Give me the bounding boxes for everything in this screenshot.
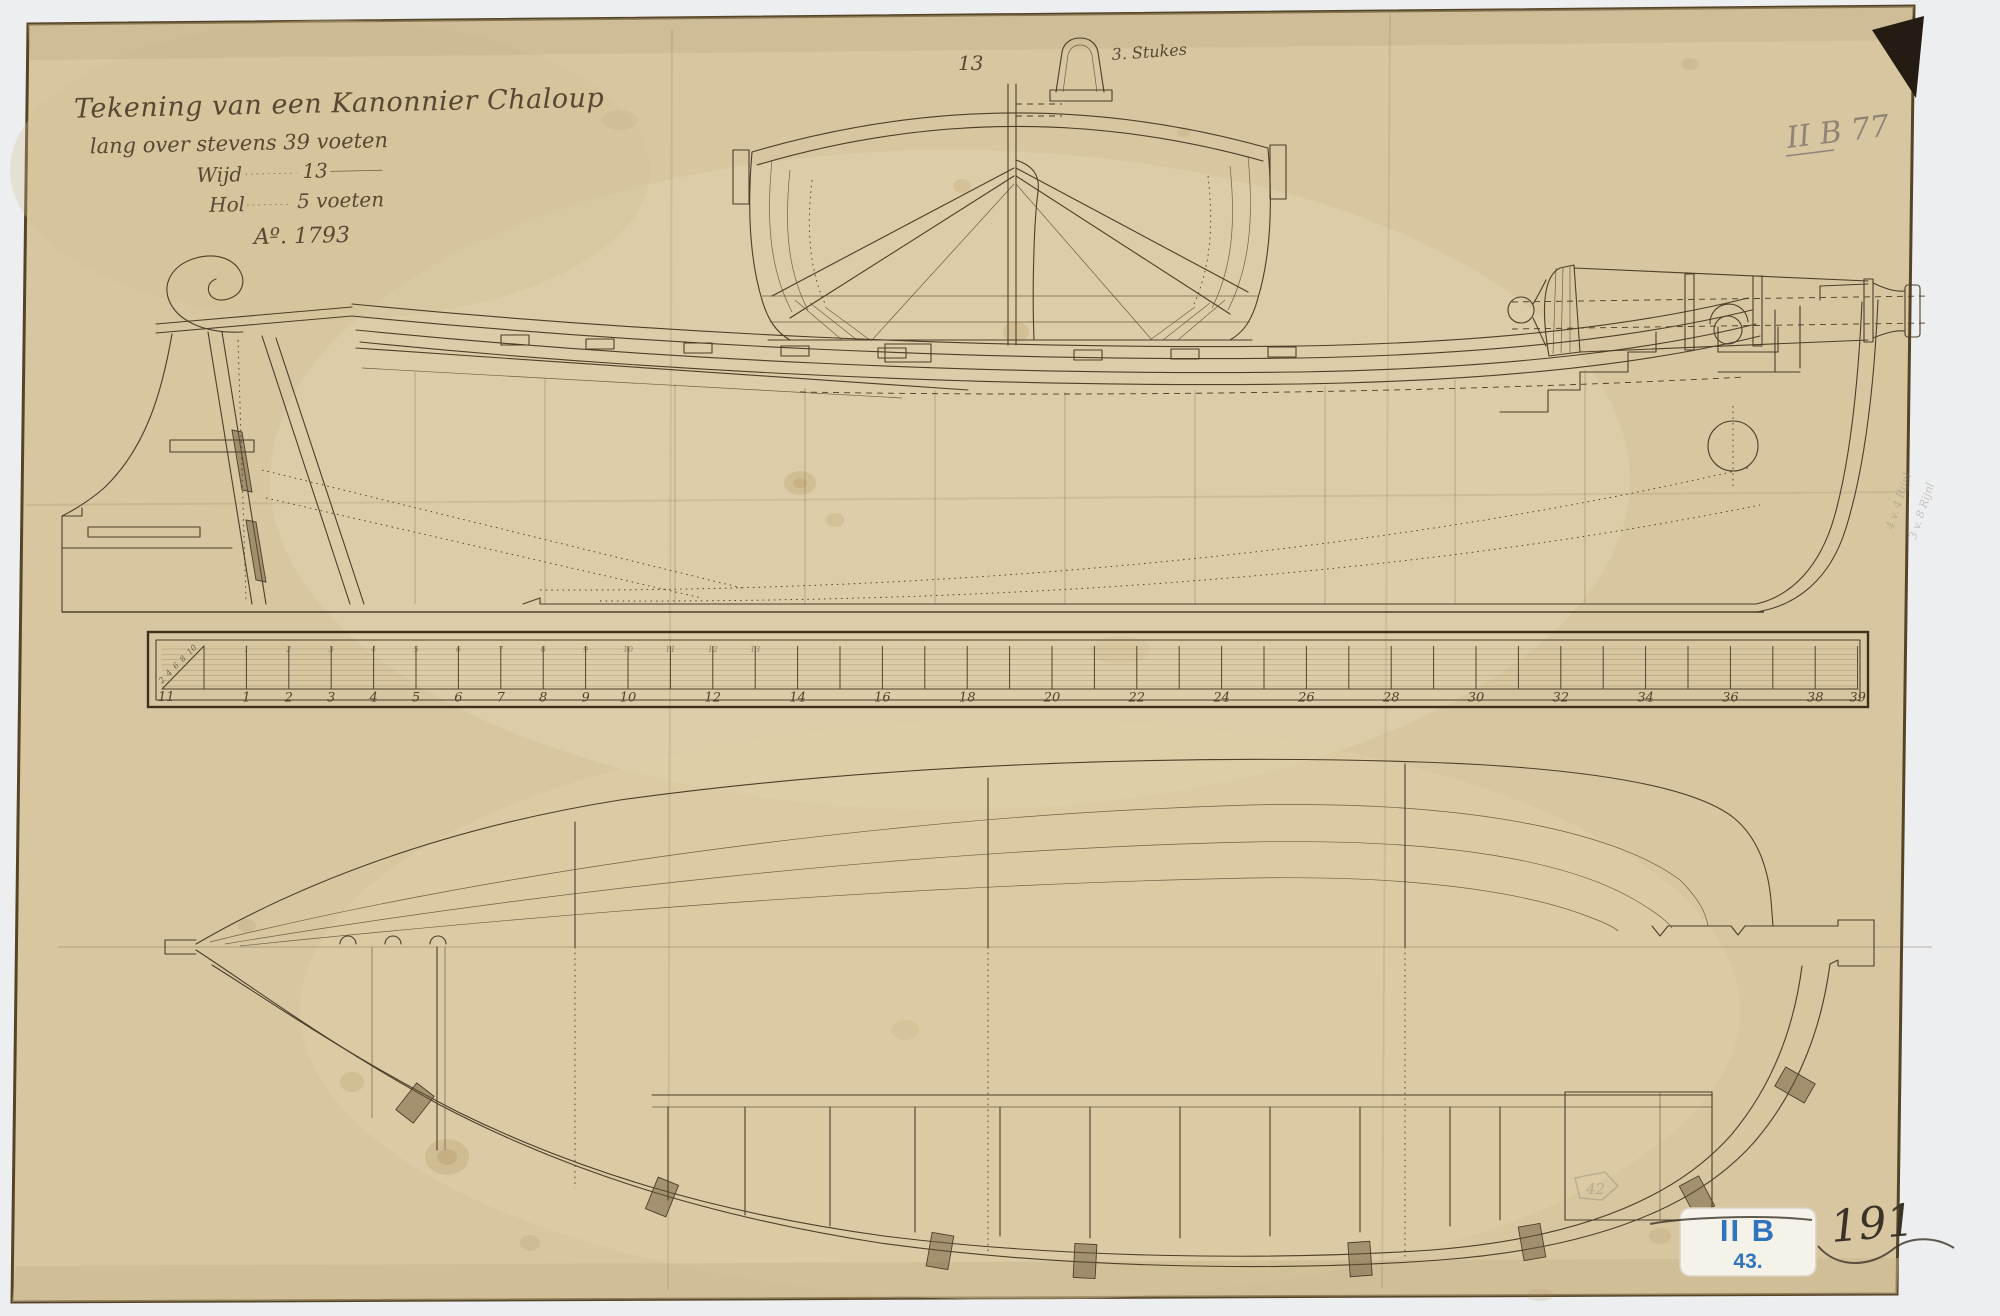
scale-number-bottom: 10 <box>620 691 637 706</box>
scale-number-top: 10 <box>623 645 633 654</box>
pencil-circle-number: 42 <box>1585 1180 1605 1198</box>
scale-number-bottom: 14 <box>789 691 806 706</box>
scale-number-top: 6 <box>456 645 461 654</box>
body-plan-beam-label: 13 <box>958 51 983 75</box>
scale-number-bottom: 20 <box>1043 691 1061 706</box>
beam-label: Wijd <box>196 162 242 187</box>
scale-number-top: 2 <box>285 645 291 654</box>
scale-number-bottom: 7 <box>497 691 506 706</box>
scale-number-bottom: 16 <box>874 691 891 706</box>
scale-number-bottom: 24 <box>1212 691 1230 706</box>
depth-value: 5 voeten <box>297 187 384 213</box>
scale-number-bottom: 38 <box>1807 691 1824 706</box>
scale-number-top: 4 <box>370 645 376 654</box>
scale-number-bottom: 18 <box>959 691 976 706</box>
scale-number-bottom: 9 <box>581 691 589 706</box>
ship-plan-canvas: Tekening van een Kanonnier Chaloup lang … <box>0 0 2000 1316</box>
beam-value: 13 <box>302 158 328 183</box>
scale-number-corner: 11 <box>158 690 175 705</box>
scale-number-bottom: 5 <box>412 691 420 706</box>
scale-number-bottom: 39 <box>1849 691 1866 706</box>
scale-number-top: 7 <box>498 645 504 654</box>
scale-number-bottom: 34 <box>1637 691 1654 706</box>
scale-number-bottom: 26 <box>1297 691 1315 706</box>
scanned-drawing-page: Tekening van een Kanonnier Chaloup lang … <box>0 0 2000 1316</box>
scale-number-top: 1 <box>244 645 249 654</box>
scale-number-top: 5 <box>413 645 418 654</box>
scale-number-bottom: 30 <box>1468 691 1485 706</box>
scale-number-bottom: 3 <box>327 691 335 706</box>
scale-number-top: 9 <box>583 645 588 654</box>
year-note: Aº. 1793 <box>252 223 351 250</box>
scale-number-bottom: 2 <box>284 691 293 706</box>
scale-number-bottom: 36 <box>1722 691 1739 706</box>
scale-number-bottom: 28 <box>1382 691 1400 706</box>
paper-light-patch <box>300 720 1740 1300</box>
scale-number-bottom: 8 <box>539 691 547 706</box>
scale-number-top: 8 <box>541 645 546 654</box>
depth-label: Hol <box>208 192 245 217</box>
scale-number-top: 11 <box>665 645 675 654</box>
scale-number-top: 3 <box>329 645 334 654</box>
inventory-number-text: 191 <box>1829 1195 1917 1253</box>
scale-number-bottom: 12 <box>705 691 722 706</box>
paper-dark-patch <box>10 20 650 320</box>
scale-number-bottom: 22 <box>1128 691 1146 706</box>
stern-note-line2: 3 v. 8 Rijnl <box>1906 481 1937 541</box>
scale-number-bottom: 4 <box>368 691 377 706</box>
scale-number-bottom: 1 <box>242 691 250 706</box>
label-number: 43. <box>1733 1250 1762 1273</box>
scale-number-top: 13 <box>750 645 760 654</box>
scale-number-bottom: 32 <box>1553 691 1570 706</box>
scale-number-bottom: 6 <box>454 691 462 706</box>
scale-number-top: 12 <box>708 645 718 654</box>
